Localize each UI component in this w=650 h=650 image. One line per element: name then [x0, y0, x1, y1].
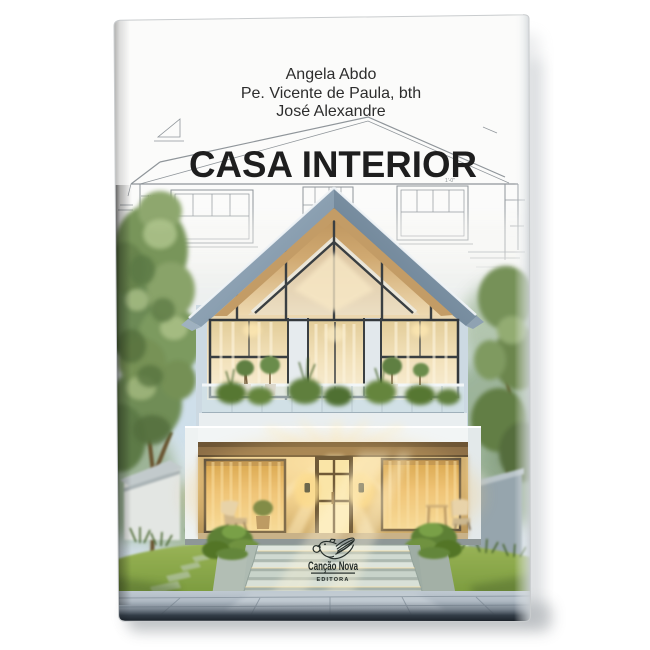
svg-text:Canção Nova: Canção Nova: [308, 561, 358, 573]
svg-text:Pe. Vicente de Paula, bth: Pe. Vicente de Paula, bth: [241, 85, 421, 102]
svg-text:José Alexandre: José Alexandre: [276, 103, 386, 120]
svg-text:CASA INTERIOR: CASA INTERIOR: [189, 144, 477, 185]
svg-text:Angela Abdo: Angela Abdo: [286, 66, 377, 83]
svg-text:EDITORA: EDITORA: [316, 577, 349, 583]
